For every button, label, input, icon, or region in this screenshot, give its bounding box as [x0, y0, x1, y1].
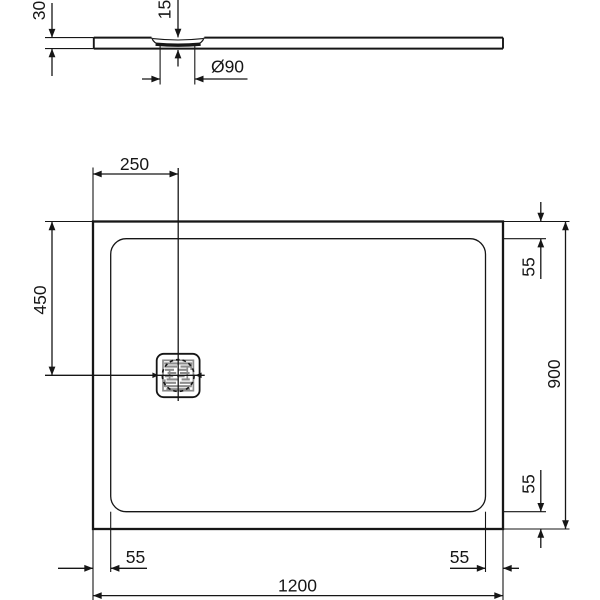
svg-text:250: 250 [120, 154, 149, 174]
svg-text:15: 15 [155, 0, 175, 19]
svg-text:30: 30 [29, 1, 49, 21]
svg-text:55: 55 [126, 547, 145, 567]
svg-text:55: 55 [519, 474, 539, 493]
svg-text:1200: 1200 [278, 576, 317, 596]
svg-text:55: 55 [450, 547, 469, 567]
svg-text:Ø90: Ø90 [211, 57, 244, 77]
svg-text:450: 450 [30, 285, 50, 314]
svg-text:55: 55 [519, 257, 539, 276]
svg-text:900: 900 [544, 359, 564, 388]
